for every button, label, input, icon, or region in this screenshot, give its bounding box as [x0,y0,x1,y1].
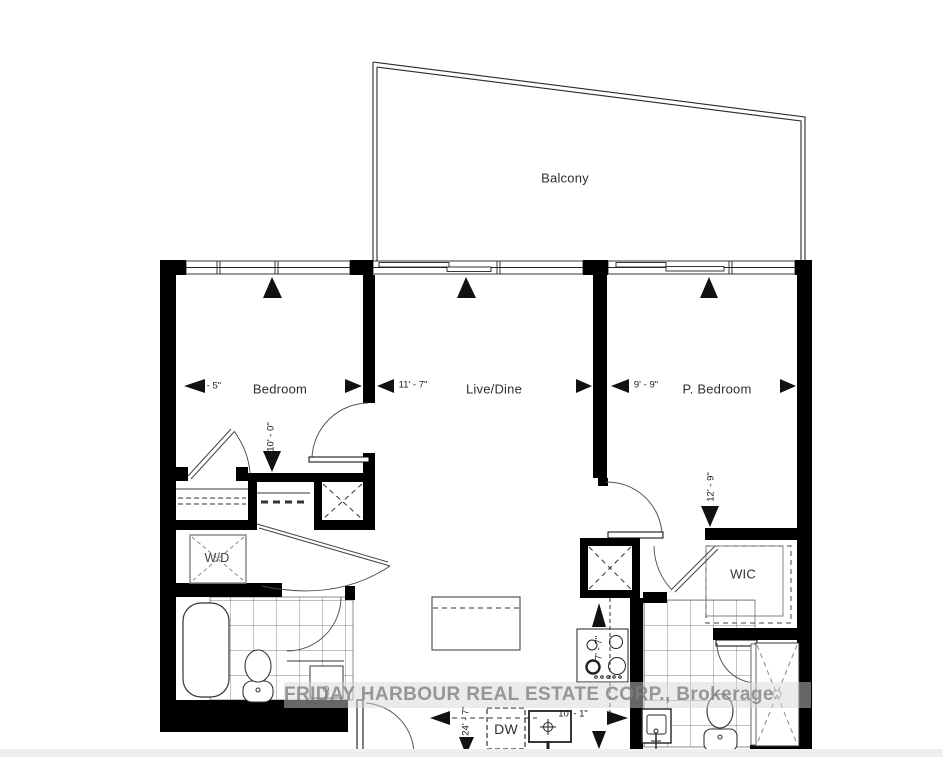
room-label-wic: WIC [730,567,756,582]
room-label-live-dine: Live/Dine [466,382,522,397]
dimension-p-bedroom-width: 9' - 9" [634,380,658,391]
room-label-bedroom: Bedroom [253,382,307,397]
dimension-kitchen-depth: 7' - 7" [594,636,605,660]
p-bedroom-door [606,482,663,538]
window-band [186,261,795,274]
entry-door [357,700,414,756]
watermark: FRIDAY HARBOUR REAL ESTATE CORP., Broker… [284,682,811,708]
shaft-bedroom [322,482,363,520]
dimension-bedroom-width: 9' - 5" [197,381,221,392]
floor-plan: Balcony Bedroom Live/Dine P. Bedroom WIC… [0,0,943,757]
bedroom-closet-shelves [176,489,310,504]
bathtub [183,603,229,697]
floor-plan-drawing [0,0,943,757]
dimension-bedroom-depth: 10' - 0" [266,422,277,451]
wic-door [654,546,718,592]
dimension-live-dine-width: 11' - 7" [399,380,428,391]
dimension-kitchen-width: 10' - 1" [558,709,587,720]
room-label-p-bedroom: P. Bedroom [683,382,752,397]
dimension-unit-depth: 24' - 7" [461,706,472,735]
kitchen-island [432,597,520,650]
entry-closet-door [257,524,390,591]
dimension-p-bedroom-depth: 12' - 9" [706,472,717,501]
vanity-ensuite [642,709,671,749]
washer-dryer-label: W/D [205,551,230,565]
bedroom-door [309,403,369,462]
dishwasher-label: DW [494,721,518,737]
footer-strip [0,749,943,757]
shaft-kitchen [588,546,632,590]
watermark-text: FRIDAY HARBOUR REAL ESTATE CORP., Broker… [284,684,774,705]
room-label-balcony: Balcony [541,171,589,186]
toilet-main [243,650,273,702]
balcony-railing [373,62,805,261]
